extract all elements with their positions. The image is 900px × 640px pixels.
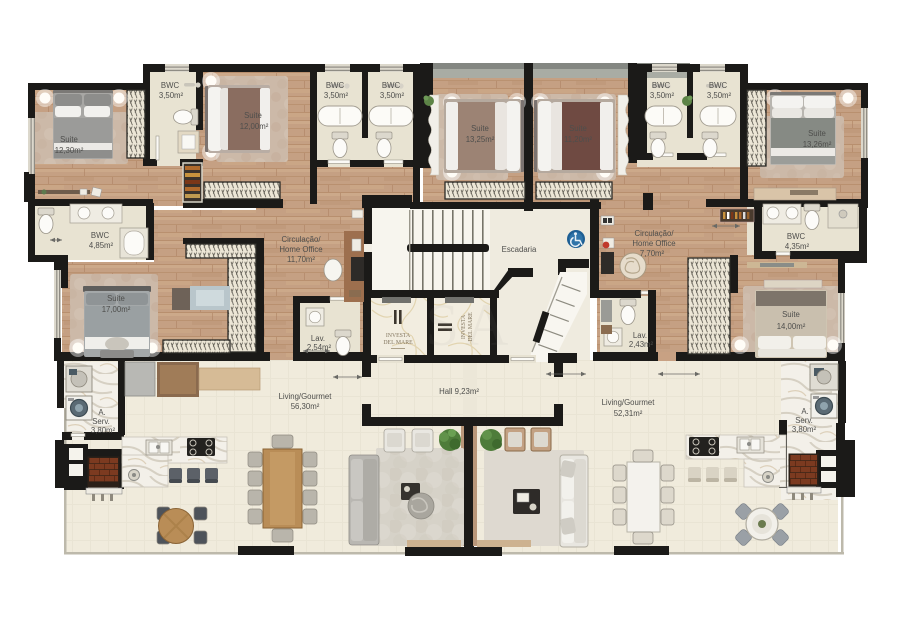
- svg-text:Suite: Suite: [569, 124, 587, 133]
- svg-text:Hall 9,23m²: Hall 9,23m²: [439, 387, 479, 396]
- svg-text:Home Office: Home Office: [279, 245, 322, 254]
- svg-text:11,70m²: 11,70m²: [287, 255, 315, 264]
- svg-text:A.: A.: [98, 408, 105, 417]
- svg-text:Suite: Suite: [471, 124, 489, 133]
- svg-text:Suite: Suite: [107, 294, 125, 303]
- svg-text:3,50m²: 3,50m²: [324, 91, 349, 100]
- svg-text:Lav.: Lav.: [311, 334, 325, 343]
- svg-text:4,35m²: 4,35m²: [785, 242, 810, 251]
- svg-text:11,20m²: 11,20m²: [564, 135, 592, 144]
- svg-text:BWC: BWC: [787, 232, 806, 241]
- svg-text:12,00m²: 12,00m²: [240, 122, 269, 131]
- svg-text:Circulação/: Circulação/: [282, 235, 322, 244]
- svg-text:Living/Gourmet: Living/Gourmet: [279, 392, 333, 401]
- svg-text:BWC: BWC: [326, 81, 345, 90]
- svg-text:BWC: BWC: [709, 81, 728, 90]
- svg-text:3,50m²: 3,50m²: [159, 91, 184, 100]
- svg-text:Suite: Suite: [244, 111, 262, 120]
- svg-text:INVESTA: INVESTA: [386, 333, 411, 339]
- svg-text:2,54m²: 2,54m²: [307, 343, 332, 352]
- svg-text:A.: A.: [801, 407, 808, 416]
- svg-text:4,85m²: 4,85m²: [89, 241, 114, 250]
- svg-text:BWC: BWC: [382, 81, 401, 90]
- svg-text:3,50m²: 3,50m²: [380, 91, 405, 100]
- svg-text:17,00m²: 17,00m²: [102, 305, 131, 314]
- svg-text:Living/Gourmet: Living/Gourmet: [602, 398, 656, 407]
- svg-text:12,30m²: 12,30m²: [55, 146, 84, 155]
- svg-text:BWC: BWC: [91, 231, 110, 240]
- svg-text:13,26m²: 13,26m²: [803, 140, 832, 149]
- svg-text:3,50m²: 3,50m²: [707, 91, 732, 100]
- svg-text:BWC: BWC: [161, 81, 180, 90]
- svg-text:BWC: BWC: [652, 81, 671, 90]
- svg-text:2,43m²: 2,43m²: [629, 340, 654, 349]
- svg-text:56,30m²: 56,30m²: [291, 402, 320, 411]
- svg-text:13,25m²: 13,25m²: [466, 135, 495, 144]
- svg-text:Suite: Suite: [808, 129, 826, 138]
- svg-text:Escadaria: Escadaria: [502, 245, 537, 254]
- svg-text:7,70m²: 7,70m²: [640, 249, 665, 258]
- svg-text:Circulação/: Circulação/: [635, 229, 675, 238]
- svg-text:14,00m²: 14,00m²: [777, 322, 806, 331]
- svg-text:Suite: Suite: [60, 135, 78, 144]
- svg-text:3,50m²: 3,50m²: [650, 91, 675, 100]
- svg-text:Serv.: Serv.: [92, 417, 110, 426]
- svg-text:3,80m²: 3,80m²: [792, 425, 817, 434]
- svg-text:Lav.: Lav.: [633, 331, 647, 340]
- svg-text:Suite: Suite: [782, 310, 800, 319]
- svg-text:52,31m²: 52,31m²: [614, 409, 643, 418]
- svg-text:3,80m²: 3,80m²: [91, 426, 116, 435]
- svg-text:SA: SA: [426, 292, 515, 358]
- svg-text:DEL MARE: DEL MARE: [383, 340, 413, 346]
- svg-text:Serv.: Serv.: [795, 416, 813, 425]
- svg-text:Home Office: Home Office: [632, 239, 675, 248]
